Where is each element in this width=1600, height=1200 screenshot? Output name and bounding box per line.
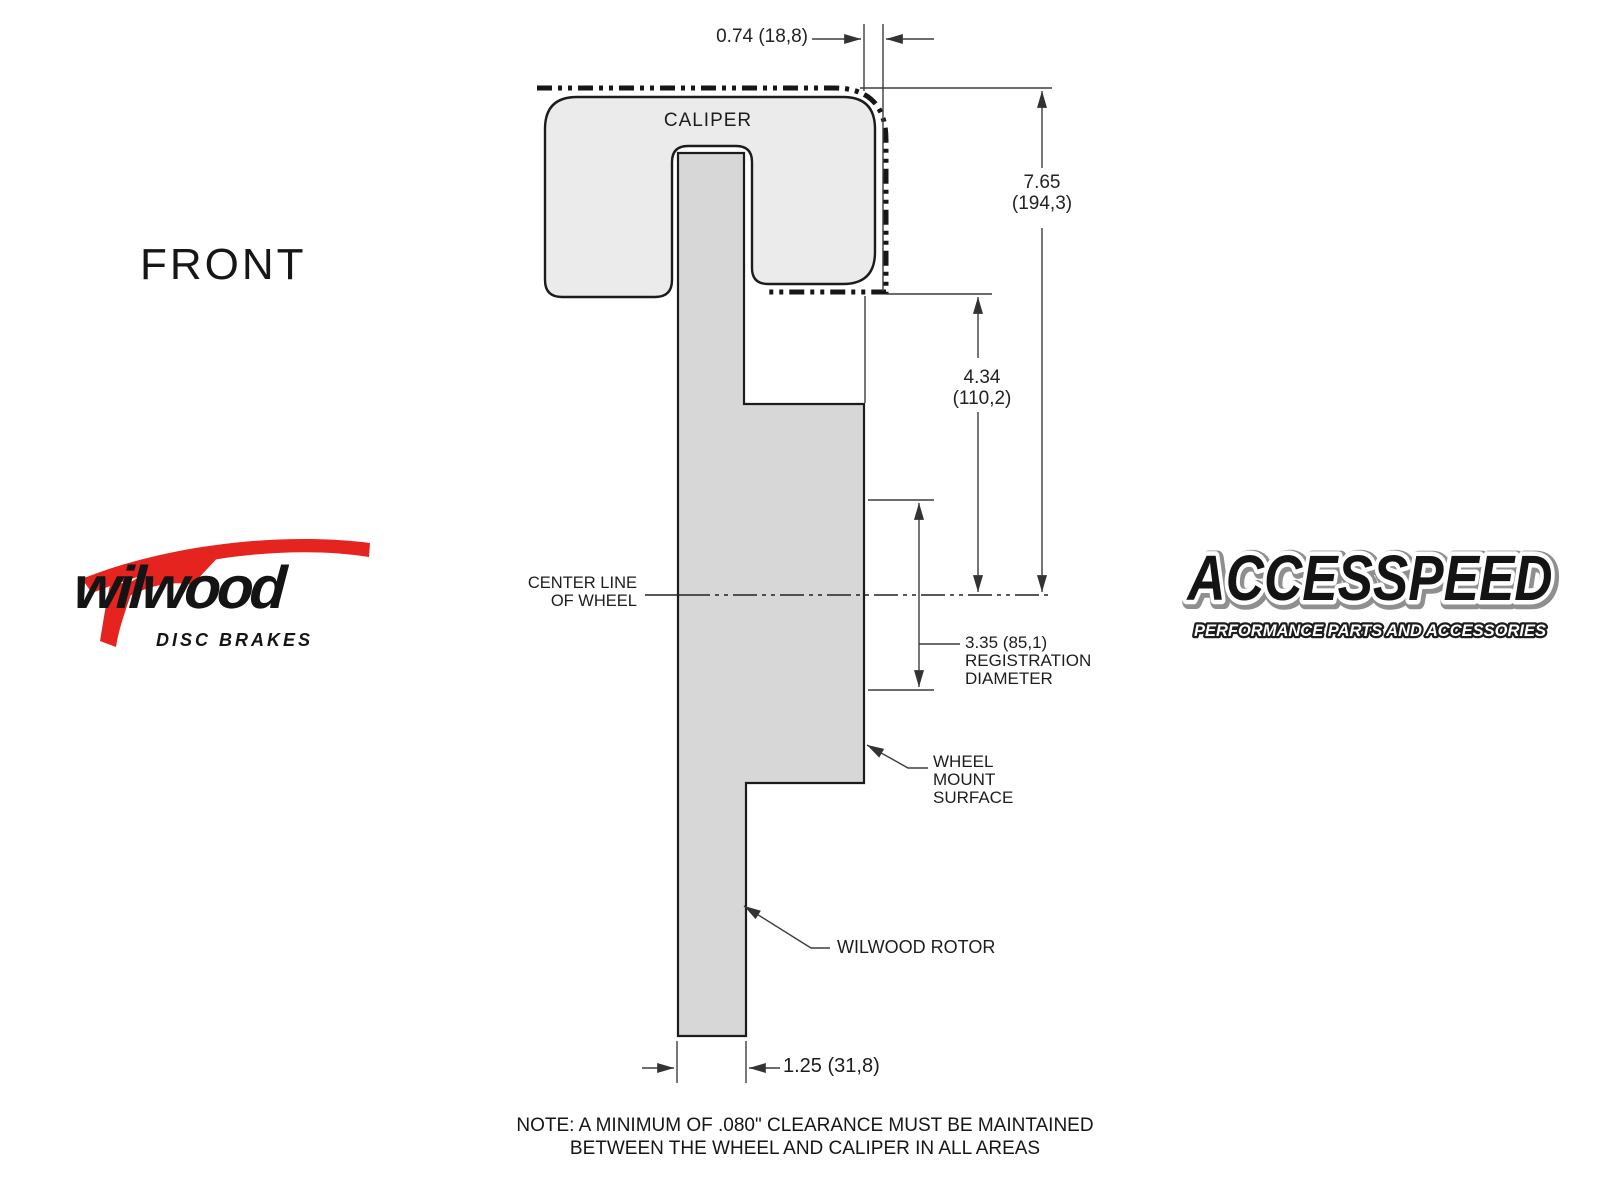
dim-mount-center-mm: (110,2)	[932, 389, 1032, 410]
wheel-mount-surface-label: WHEEL MOUNT SURFACE	[933, 753, 1013, 807]
wheel-mount-line2: MOUNT	[933, 771, 1013, 789]
dim-height-text: 7.65 (194,3)	[992, 173, 1092, 214]
wilwood-rotor-label: WILWOOD ROTOR	[837, 938, 995, 957]
registration-word2: DIAMETER	[965, 670, 1091, 688]
clearance-note-line2: BETWEEN THE WHEEL AND CALIPER IN ALL ARE…	[455, 1137, 1155, 1160]
accesspeed-logo: ACCESSPEED ACCESSPEED ACCESSPEED PERFORM…	[1155, 520, 1585, 655]
dim-overhang-text: 0.74 (18,8)	[660, 27, 808, 48]
leader-wheel-mount-surface	[867, 745, 928, 768]
dim-height-inches: 7.65	[992, 173, 1092, 194]
wilwood-tagline: DISC BRAKES	[156, 630, 313, 651]
registration-word1: REGISTRATION	[965, 652, 1091, 670]
leader-wilwood-rotor	[744, 906, 830, 948]
dim-height-mm: (194,3)	[992, 194, 1092, 215]
front-view-label: FRONT	[140, 241, 307, 289]
dim-mount-center-inches: 4.34	[932, 368, 1032, 389]
centerline-label-line1: CENTER LINE	[495, 575, 637, 593]
centerline-label: CENTER LINE OF WHEEL	[495, 575, 637, 610]
dim-rotor-width-text: 1.25 (31,8)	[783, 1056, 880, 1078]
registration-value: 3.35 (85,1)	[965, 634, 1091, 652]
clearance-note-line1: NOTE: A MINIMUM OF .080" CLEARANCE MUST …	[455, 1114, 1155, 1137]
registration-diameter-label: 3.35 (85,1) REGISTRATION DIAMETER	[965, 634, 1091, 688]
wheel-mount-line1: WHEEL	[933, 753, 1013, 771]
wilwood-logo: wilwood DISC BRAKES	[70, 527, 390, 659]
centerline-label-line2: OF WHEEL	[495, 593, 637, 611]
dim-mount-center-text: 4.34 (110,2)	[932, 368, 1032, 409]
accesspeed-wordmark: ACCESSPEED	[1186, 543, 1553, 614]
clearance-note: NOTE: A MINIMUM OF .080" CLEARANCE MUST …	[455, 1114, 1155, 1160]
accesspeed-tagline: PERFORMANCE PARTS AND ACCESSORIES	[1194, 622, 1546, 640]
caliper-label: CALIPER	[648, 111, 768, 132]
wheel-mount-line3: SURFACE	[933, 789, 1013, 807]
wilwood-wordmark: wilwood	[72, 553, 285, 622]
wheel-clearance-diagram-page: FRONT CALIPER 0.74 (18,8) 7.65 (194,3) 4…	[0, 0, 1600, 1200]
